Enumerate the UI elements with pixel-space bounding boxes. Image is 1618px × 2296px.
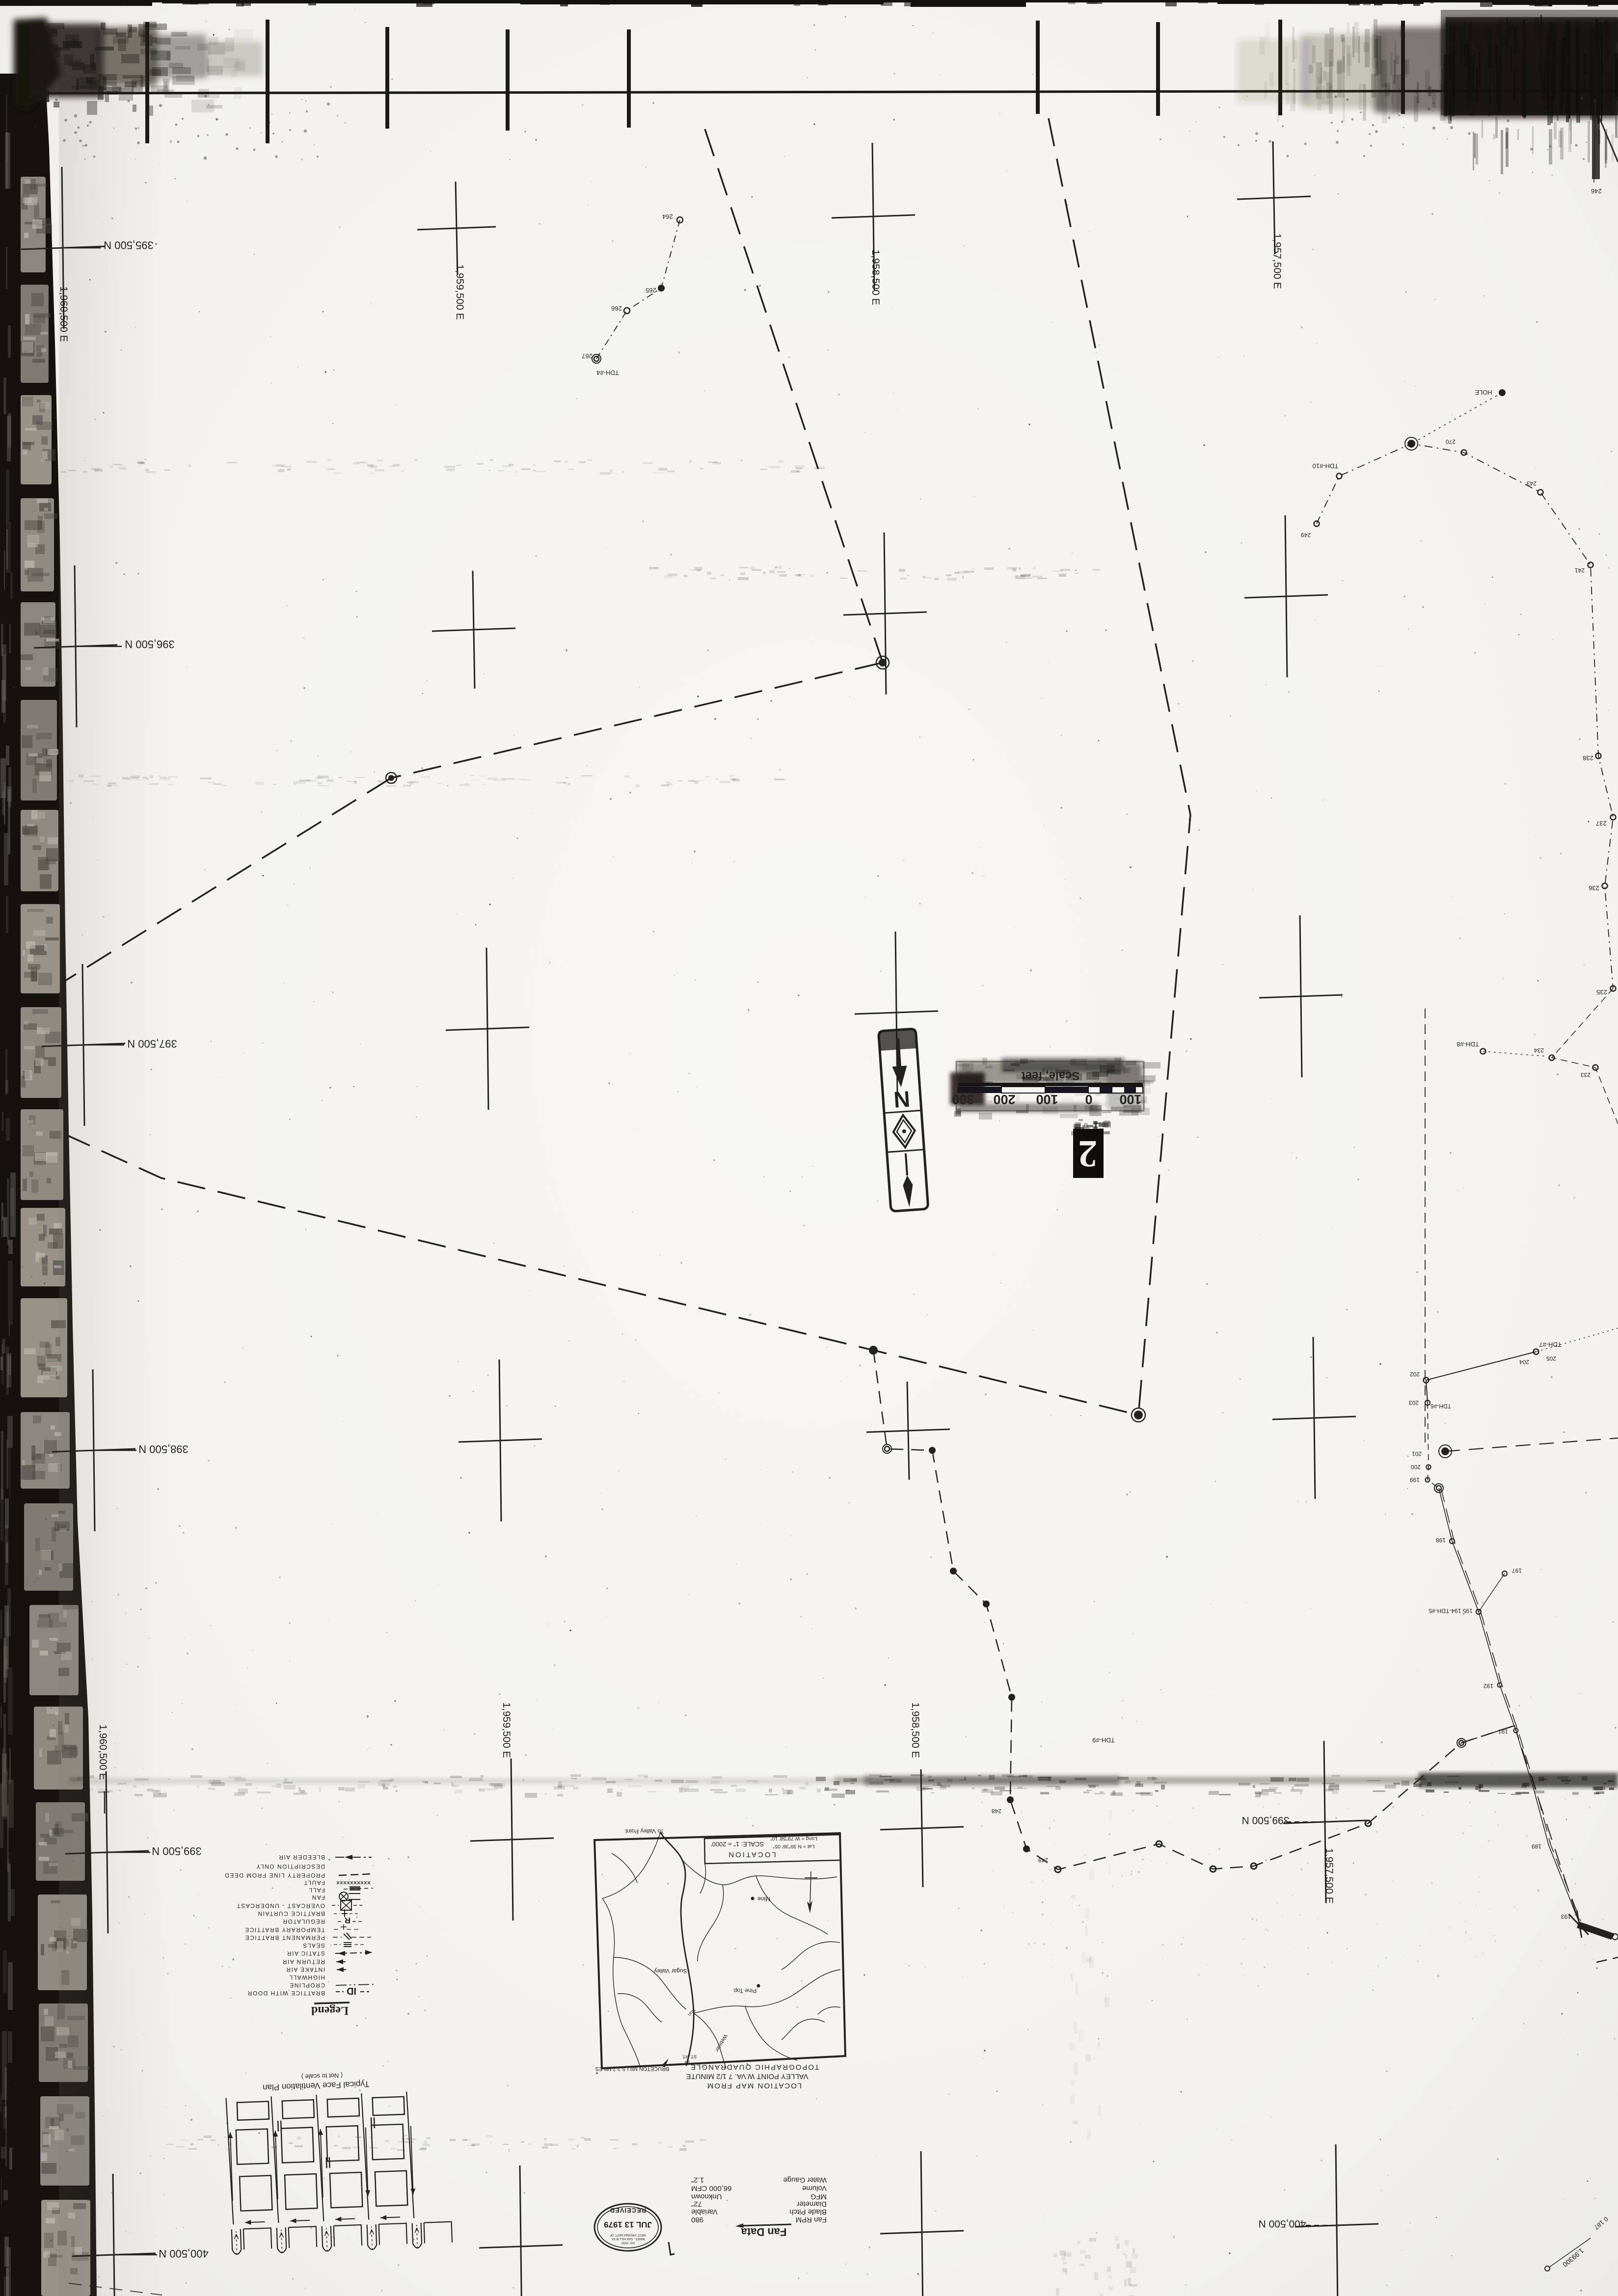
svg-text:Fan RPM: Fan RPM [796,2216,827,2224]
svg-text:HOLE: HOLE [1475,389,1492,396]
svg-text:234: 234 [1534,1047,1544,1054]
svg-text:( Not to scale ): ( Not to scale ) [301,2072,343,2081]
svg-text:398,500 N: 398,500 N [138,1443,189,1455]
svg-text:270: 270 [1446,438,1456,445]
svg-text:Legend: Legend [311,2004,349,2017]
svg-text:Scale, feet: Scale, feet [1022,1069,1080,1082]
svg-text:399,500 N: 399,500 N [1242,1815,1290,1826]
svg-text:RETURN AIR: RETURN AIR [282,1958,325,1965]
svg-text:MINES - OAK HILL W.VA.: MINES - OAK HILL W.VA. [611,2237,645,2240]
svg-text:FAN: FAN [311,1894,325,1901]
svg-text:192: 192 [1483,1682,1493,1689]
svg-text:TDH-#8: TDH-#8 [1456,1041,1479,1048]
svg-text:HIGHWALL: HIGHWALL [289,1974,325,1981]
svg-text:DESCRIPTION ONLY: DESCRIPTION ONLY [256,1863,325,1870]
svg-text:SEALS: SEALS [302,1942,325,1949]
svg-text:JUL 13 1979: JUL 13 1979 [604,2220,652,2229]
svg-text:400,500 N: 400,500 N [1259,2218,1306,2229]
svg-text:249: 249 [1038,1857,1048,1864]
svg-text:INTAKE AIR: INTAKE AIR [286,1966,325,1973]
svg-text:0: 0 [1085,1092,1092,1107]
svg-text:TDH-#7: TDH-#7 [1539,1341,1562,1348]
svg-text:TDH-#9: TDH-#9 [1092,1736,1115,1744]
svg-text:Diameter: Diameter [797,2200,827,2208]
svg-text:201: 201 [1412,1450,1422,1457]
svg-text:241: 241 [1575,567,1585,574]
svg-text:189: 189 [1532,1843,1541,1850]
svg-text:FAULT: FAULT [303,1879,325,1886]
svg-text:238: 238 [1583,754,1593,762]
svg-text:396,500 N: 396,500 N [125,638,175,650]
svg-text:980: 980 [691,2216,703,2224]
svg-text:Sugar Valley: Sugar Valley [654,1968,687,1975]
svg-text:ST. RT.: ST. RT. [682,2054,697,2059]
svg-text:100: 100 [1036,1092,1058,1107]
svg-text:OVERCAST - UNDERCAST: OVERCAST - UNDERCAST [236,1902,325,1909]
svg-text:300: 300 [952,1092,974,1107]
svg-text:236: 236 [1589,884,1599,892]
svg-text:248: 248 [992,1808,1001,1815]
svg-text:1,958,500 E: 1,958,500 E [910,1702,921,1758]
svg-text:Blade Pitch: Blade Pitch [789,2208,827,2216]
svg-text:198: 198 [1436,1537,1446,1544]
svg-text:Variable: Variable [691,2208,718,2216]
svg-text:STATIC AIR: STATIC AIR [286,1950,325,1957]
svg-text:LOCATION MAP FROM: LOCATION MAP FROM [706,2082,802,2090]
svg-text:Fan Data: Fan Data [741,2226,787,2238]
svg-text:193: 193 [1561,1913,1571,1920]
svg-text:204: 204 [1519,1359,1529,1365]
svg-text:DIV. INSP.: DIV. INSP. [621,2241,635,2244]
svg-text:BRATTICE WITH DOOR: BRATTICE WITH DOOR [247,1990,325,1997]
svg-text:199: 199 [1410,1476,1420,1483]
svg-text:SCALE: 1" = 2000': SCALE: 1" = 2000' [711,1841,764,1848]
svg-text:Lat = N 39°36' 05": Lat = N 39°36' 05" [773,1843,814,1849]
svg-text:100: 100 [1119,1092,1141,1107]
svg-text:Pine Top: Pine Top [733,1987,756,1994]
svg-text:205: 205 [1546,1355,1556,1362]
svg-text:243: 243 [1527,480,1537,487]
svg-text:BRATTICE CURTAIN: BRATTICE CURTAIN [257,1910,325,1917]
svg-text:TDH-#4: TDH-#4 [596,369,619,376]
svg-text:1.2": 1.2" [691,2176,704,2184]
svg-text:1,957,500 E: 1,957,500 E [1271,233,1283,289]
svg-text:Mine: Mine [757,1896,770,1902]
svg-text:237: 237 [1596,820,1607,827]
svg-text:66,000 CFM: 66,000 CFM [691,2184,732,2192]
svg-text:249: 249 [1301,532,1311,538]
svg-text:Long = W 79°58' 10": Long = W 79°58' 10" [770,1836,817,1842]
svg-text:400,500 N: 400,500 N [159,2247,209,2260]
svg-text:191: 191 [1498,1728,1508,1735]
svg-text:395,500 N: 395,500 N [104,239,154,251]
svg-text:PROPERTY LINE FROM DEED: PROPERTY LINE FROM DEED [224,1872,325,1879]
svg-text:1,958,500 E: 1,958,500 E [870,249,881,305]
svg-text:FALL: FALL [308,1887,325,1894]
svg-text:200: 200 [1411,1464,1421,1470]
svg-text:REGULATOR: REGULATOR [282,1918,325,1925]
svg-text:235: 235 [1596,988,1607,996]
svg-text:ID: ID [347,1985,356,1996]
svg-text:1,959,500 E: 1,959,500 E [454,264,465,320]
svg-text:197: 197 [1512,1567,1522,1574]
svg-text:1,960,500 E: 1,960,500 E [58,286,69,342]
svg-text:TEMPORARY BRATTICE: TEMPORARY BRATTICE [244,1926,325,1933]
svg-text:264: 264 [662,213,673,220]
svg-text:BRUCETON MILLS 2.7 MILES: BRUCETON MILLS 2.7 MILES [595,2066,670,2072]
svg-text:TDH-#6: TDH-#6 [1430,1403,1451,1410]
svg-text:MFG: MFG [810,2192,827,2201]
svg-text:BLEEDER AIR: BLEEDER AIR [278,1854,325,1861]
svg-text:233: 233 [1581,1071,1591,1078]
svg-text:1,960,500 E: 1,960,500 E [97,1724,108,1780]
svg-text:2: 2 [1079,1133,1098,1175]
svg-text:TOPOGRAPHIC QUADRANGLE: TOPOGRAPHIC QUADRANGLE [690,2063,819,2071]
svg-text:195 194-TDH-#5: 195 194-TDH-#5 [1429,1607,1473,1614]
svg-text:TDH-#10: TDH-#10 [1313,462,1339,470]
svg-text:399,500 N: 399,500 N [152,1845,202,1857]
svg-text:1,957,500 E: 1,957,500 E [1323,1848,1335,1903]
svg-text:Volume: Volume [802,2184,827,2192]
svg-text:RECEIVED: RECEIVED [610,2207,646,2214]
svg-text:N: N [893,1086,911,1113]
svg-text:397,500 N: 397,500 N [127,1038,177,1050]
svg-text:R: R [345,1916,351,1925]
svg-text:To Valley Point: To Valley Point [625,1828,664,1835]
svg-text:265: 265 [646,287,656,294]
svg-text:200: 200 [993,1092,1015,1107]
svg-text:203: 203 [1409,1399,1419,1406]
svg-text:72": 72" [691,2200,702,2208]
svg-text:PERMANENT BRATTICE: PERMANENT BRATTICE [244,1934,325,1941]
svg-text:Unknown: Unknown [691,2192,722,2201]
svg-text:246: 246 [1591,187,1602,195]
svg-text:267: 267 [582,352,593,360]
svg-text:202: 202 [1410,1371,1420,1378]
svg-text:Water Gauge: Water Gauge [783,2176,827,2184]
svg-text:LOCATION: LOCATION [727,1850,776,1859]
svg-text:26: 26 [685,2059,690,2065]
svg-text:266: 266 [611,305,622,312]
svg-text:CROPLINE: CROPLINE [289,1982,325,1989]
svg-text:VALLEY POINT W.VA. 7 1/2 M: VALLEY POINT W.VA. 7 1/2 MINUTE [686,2072,809,2081]
svg-text:1,959,500 E: 1,959,500 E [501,1702,512,1758]
svg-text:WEST VIRGINIA DEPT. OF: WEST VIRGINIA DEPT. OF [610,2233,646,2236]
